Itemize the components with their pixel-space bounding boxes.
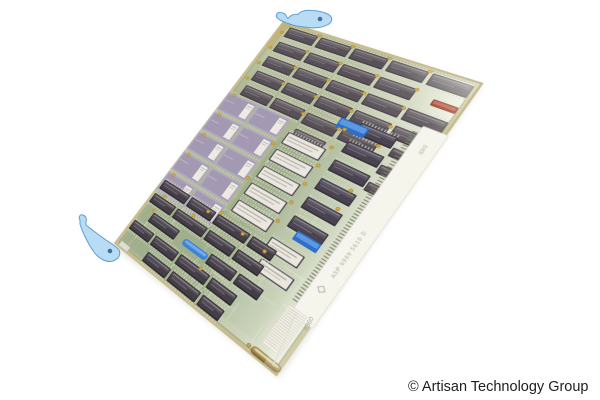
svg-text:6360: 6360 xyxy=(303,316,316,332)
